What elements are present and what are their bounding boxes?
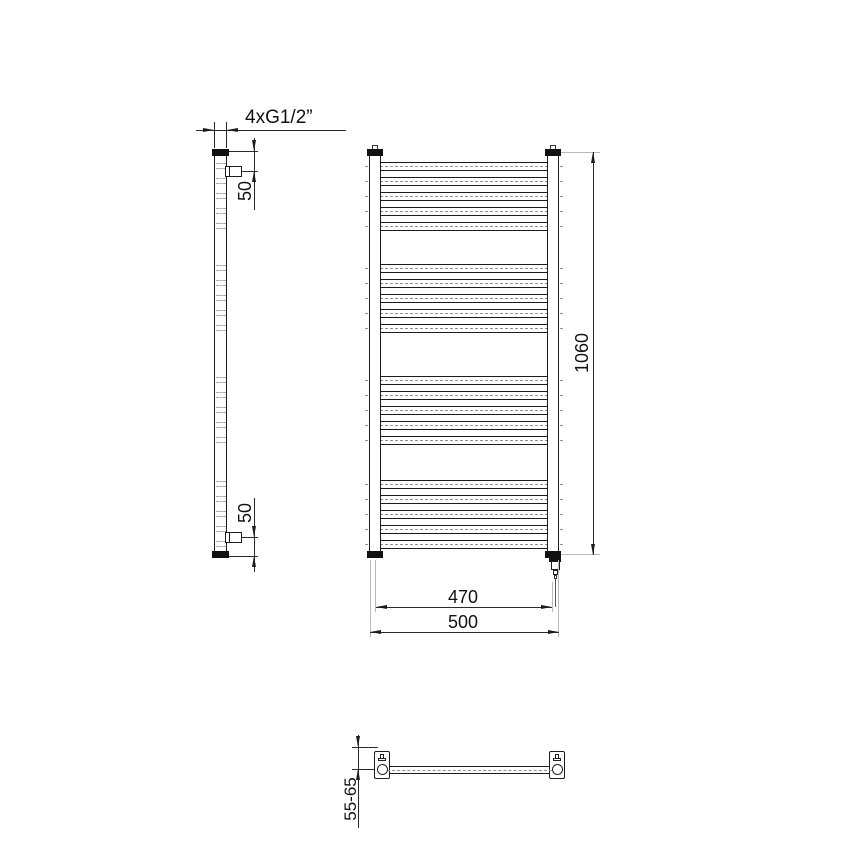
bottom-tube-centerline [382, 770, 557, 771]
side-fitting-bottom [225, 532, 242, 543]
hidden-rung-line [216, 442, 226, 443]
hidden-rung-line [216, 265, 226, 266]
wall-distance-ext-line-a [352, 747, 378, 748]
front-cap-bottom-right [545, 551, 561, 558]
hidden-rung-line [216, 208, 226, 209]
rung [380, 436, 547, 445]
rung [380, 324, 547, 333]
hidden-rung-line [216, 397, 226, 398]
hidden-rung-line [216, 285, 226, 286]
bracket-ring-left [377, 764, 388, 775]
hidden-rung-line [216, 178, 226, 179]
hidden-rung-line [216, 280, 226, 281]
hidden-rung-line [216, 270, 226, 271]
rung [380, 162, 547, 171]
bracket-screw-flange [553, 758, 561, 761]
hidden-rung-line [216, 193, 226, 194]
hidden-rung-line [216, 330, 226, 331]
rung [380, 264, 547, 273]
rung [380, 222, 547, 231]
side-fitting-top [225, 166, 242, 177]
wall-distance-value: 55-65 [341, 773, 359, 825]
rung [380, 391, 547, 400]
rung [380, 421, 547, 430]
rung [380, 480, 547, 489]
front-left-tube [369, 150, 381, 557]
rung [380, 279, 547, 288]
rung [380, 525, 547, 534]
side-cap-top [212, 149, 229, 156]
rung [380, 376, 547, 385]
arrowhead [356, 736, 360, 747]
rung [380, 192, 547, 201]
fitting-flange-line [229, 167, 230, 176]
hidden-rung-line [216, 496, 226, 497]
rung [380, 495, 547, 504]
hidden-rung-line [216, 437, 226, 438]
front-cap-top-left [367, 149, 383, 156]
bottom-view: 55-65 [0, 0, 868, 868]
hidden-rung-line [216, 183, 226, 184]
hidden-rung-line [216, 198, 226, 199]
hidden-rung-line [216, 213, 226, 214]
hidden-rung-line [216, 223, 226, 224]
rung [380, 510, 547, 519]
hidden-rung-line [216, 422, 226, 423]
hidden-rung-line [216, 412, 226, 413]
rung [380, 540, 547, 549]
hidden-rung-line [216, 427, 226, 428]
hidden-rung-line [216, 546, 226, 547]
hidden-rung-line [216, 526, 226, 527]
bracket-ring-right [552, 764, 563, 775]
hidden-rung-line [216, 228, 226, 229]
rung [380, 207, 547, 216]
fitting-flange-line [229, 533, 230, 542]
hidden-rung-line [216, 377, 226, 378]
rung [380, 177, 547, 186]
side-cap-bottom [212, 551, 229, 558]
rung [380, 406, 547, 415]
hidden-rung-line [216, 501, 226, 502]
hidden-rung-line [216, 315, 226, 316]
front-cap-top-right [545, 149, 561, 156]
hidden-rung-line [216, 300, 226, 301]
hidden-rung-line [216, 382, 226, 383]
hidden-rung-line [216, 511, 226, 512]
hidden-rung-line [216, 486, 226, 487]
rung [380, 294, 547, 303]
hidden-rung-line [216, 325, 226, 326]
hidden-rung-line [216, 163, 226, 164]
technical-drawing-canvas: 4xG1/2” 50 50 [0, 0, 868, 868]
hidden-rung-line [216, 295, 226, 296]
front-cap-bottom-left [367, 551, 383, 558]
hidden-rung-line [216, 481, 226, 482]
hidden-rung-line [216, 516, 226, 517]
hidden-rung-line [216, 310, 226, 311]
bracket-screw-flange [378, 758, 386, 761]
front-right-tube [547, 150, 559, 557]
hidden-rung-line [216, 407, 226, 408]
rung [380, 309, 547, 318]
hidden-rung-line [216, 392, 226, 393]
